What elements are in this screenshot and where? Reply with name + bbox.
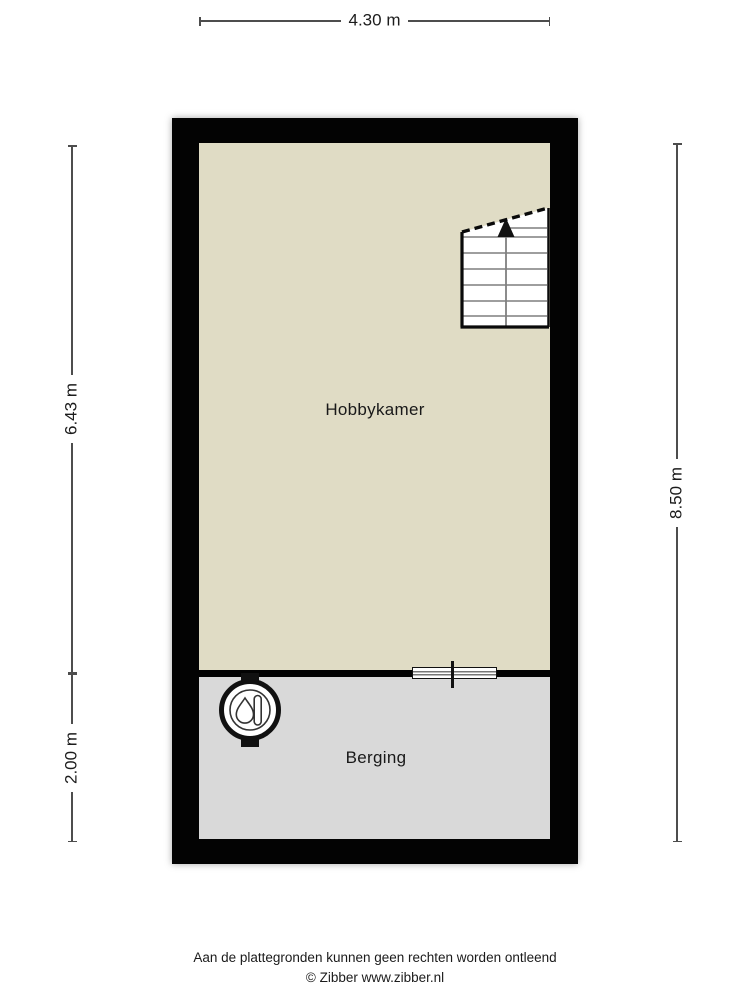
dimension-tick bbox=[68, 841, 77, 843]
room-label-hobbykamer: Hobbykamer bbox=[325, 400, 424, 420]
floorplan: Hobbykamer Berging bbox=[172, 118, 578, 864]
dimension-right-height: 8.50 m bbox=[672, 143, 682, 842]
floorplan-page: 4.30 m 6.43 m 2.00 m 8.50 m bbox=[0, 0, 750, 1000]
dimension-tick bbox=[673, 143, 682, 145]
dimension-left-lower-height: 2.00 m bbox=[67, 673, 77, 842]
dimension-label: 8.50 m bbox=[667, 459, 688, 527]
dimension-top-width: 4.30 m bbox=[199, 16, 550, 26]
footer-disclaimer: Aan de plattegronden kunnen geen rechten… bbox=[0, 948, 750, 968]
dimension-tick bbox=[199, 17, 201, 26]
dimension-label: 6.43 m bbox=[62, 375, 83, 443]
boiler-icon bbox=[214, 672, 286, 748]
dimension-label: 4.30 m bbox=[341, 11, 409, 32]
dimension-tick bbox=[68, 673, 77, 675]
dimension-tick bbox=[68, 145, 77, 147]
staircase-icon bbox=[460, 204, 550, 329]
window-icon bbox=[412, 667, 497, 679]
dimension-tick bbox=[673, 841, 682, 843]
thermometer-icon bbox=[254, 696, 261, 726]
dimension-left-upper-height: 6.43 m bbox=[67, 145, 77, 673]
window-center-tick bbox=[451, 661, 454, 688]
dimension-tick bbox=[549, 17, 551, 26]
dimension-label: 2.00 m bbox=[62, 724, 83, 792]
room-label-berging: Berging bbox=[346, 748, 407, 768]
footer-copyright: © Zibber www.zibber.nl bbox=[0, 968, 750, 988]
